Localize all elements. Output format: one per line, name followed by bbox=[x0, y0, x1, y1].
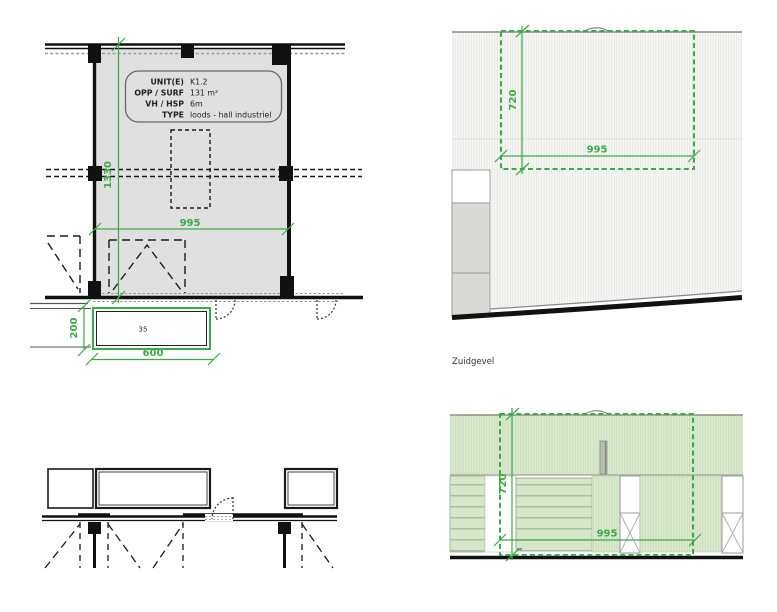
info-value-unit: K1.2 bbox=[190, 78, 208, 87]
neighbor-door-dashed bbox=[47, 236, 80, 293]
rear-elevation: 720 995 bbox=[450, 408, 743, 561]
architectural-drawing: 35 1330 995 200 600 UNIT(E) K1.2 OPP / S… bbox=[0, 0, 777, 612]
info-value-vh: 6m bbox=[190, 100, 203, 109]
info-label-surf: OPP / SURF bbox=[134, 89, 184, 98]
dim-south-height: 720 bbox=[508, 90, 519, 111]
door-swings bbox=[216, 300, 336, 319]
rear-lower-zone bbox=[450, 476, 743, 553]
south-elevation: 720 995 Zuidgevel bbox=[452, 25, 742, 367]
upper-cladding-band bbox=[450, 415, 743, 475]
plinth-block: 35 bbox=[30, 304, 210, 350]
info-value-type: loods - hall industriel bbox=[190, 111, 271, 120]
info-label-unit: UNIT(E) bbox=[150, 78, 184, 87]
dim-rear-width: 995 bbox=[597, 529, 618, 540]
detail-wall bbox=[42, 515, 337, 521]
neighbor-sectional-door bbox=[450, 476, 485, 552]
downpipe bbox=[600, 441, 607, 474]
plinth-number: 35 bbox=[139, 326, 148, 334]
elevation-caption: Zuidgevel bbox=[452, 357, 494, 367]
detail-columns bbox=[88, 522, 291, 534]
info-value-surf: 131 m² bbox=[190, 89, 218, 98]
plan-detail bbox=[42, 469, 337, 568]
annex-left bbox=[452, 170, 490, 316]
drawing-sheet: 35 1330 995 200 600 UNIT(E) K1.2 OPP / S… bbox=[0, 0, 777, 612]
info-label-type: TYPE bbox=[162, 111, 184, 120]
window-1 bbox=[620, 476, 640, 553]
unit-info-box: UNIT(E) K1.2 OPP / SURF 131 m² VH / HSP … bbox=[126, 71, 282, 122]
facade-cladding bbox=[452, 32, 742, 312]
dim-plinth-height: 200 bbox=[69, 318, 80, 339]
canopy-boxes bbox=[48, 469, 337, 508]
floor-plan: 35 1330 995 200 600 UNIT(E) K1.2 OPP / S… bbox=[30, 37, 363, 365]
dim-plinth-width: 600 bbox=[143, 348, 164, 359]
dim-rear-height: 720 bbox=[498, 474, 509, 495]
info-label-vh: VH / HSP bbox=[145, 100, 184, 109]
window-2 bbox=[722, 476, 743, 553]
dim-plan-height: 1330 bbox=[103, 161, 114, 189]
dim-south-width: 995 bbox=[587, 145, 608, 156]
dim-plan-width: 995 bbox=[180, 218, 201, 229]
